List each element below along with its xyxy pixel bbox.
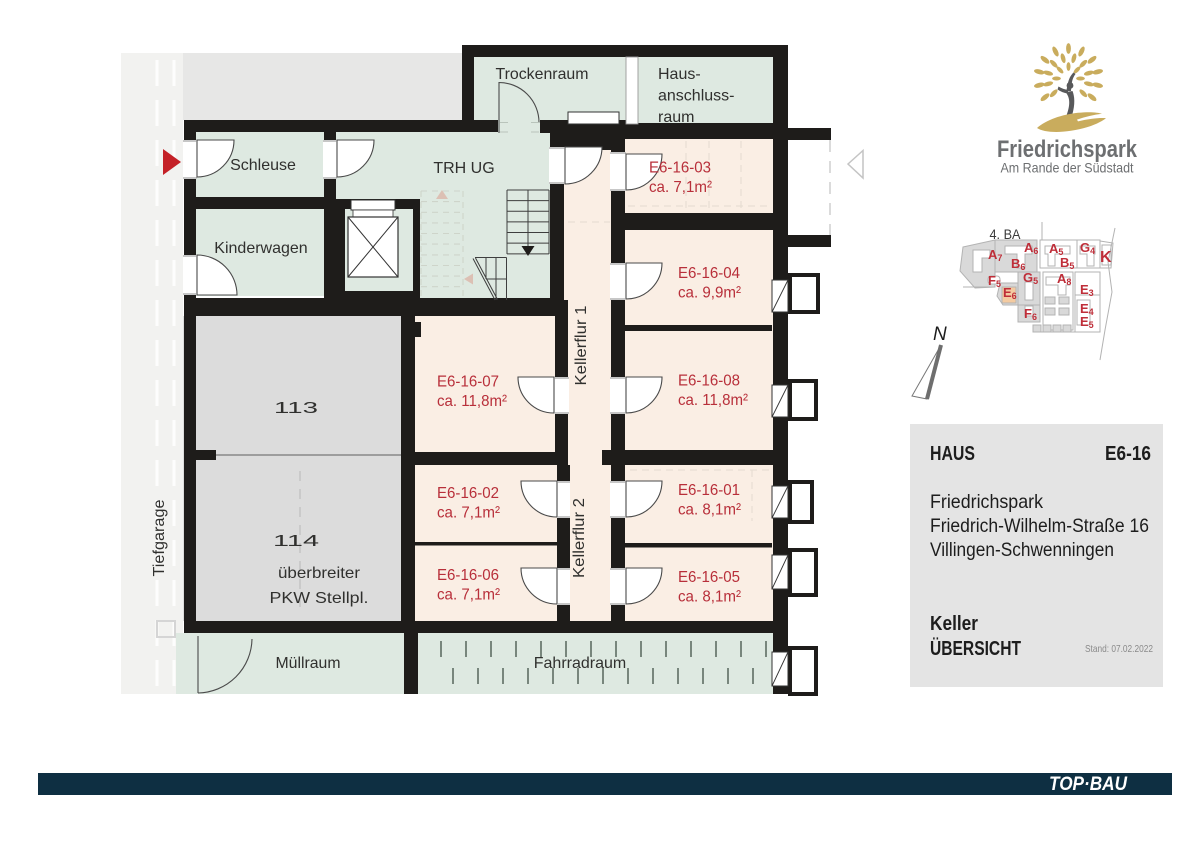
- svg-text:Keller: Keller: [930, 612, 978, 635]
- svg-text:ca. 7,1m²: ca. 7,1m²: [437, 587, 501, 604]
- svg-text:raum: raum: [658, 109, 694, 126]
- svg-text:ca. 7,1m²: ca. 7,1m²: [437, 505, 501, 522]
- svg-text:ca. 9,9m²: ca. 9,9m²: [678, 285, 742, 302]
- svg-text:überbreiter: überbreiter: [278, 565, 361, 582]
- svg-text:Müllraum: Müllraum: [276, 655, 341, 672]
- svg-text:E6-16-05: E6-16-05: [678, 569, 740, 586]
- svg-text:Am Rande der Südstadt: Am Rande der Südstadt: [1001, 160, 1134, 176]
- svg-text:Villingen-Schwenningen: Villingen-Schwenningen: [930, 539, 1114, 561]
- svg-text:114: 114: [273, 533, 319, 550]
- svg-text:E6-16-01: E6-16-01: [678, 482, 740, 499]
- svg-text:TRH UG: TRH UG: [433, 160, 494, 177]
- svg-text:PKW Stellpl.: PKW Stellpl.: [270, 590, 369, 607]
- svg-text:ca. 11,8m²: ca. 11,8m²: [437, 393, 508, 410]
- svg-text:ca. 8,1m²: ca. 8,1m²: [678, 502, 742, 519]
- svg-text:K: K: [1100, 249, 1112, 266]
- svg-text:anschluss-: anschluss-: [658, 88, 734, 105]
- svg-text:Friedrichspark: Friedrichspark: [930, 491, 1043, 513]
- svg-text:E6-16-03: E6-16-03: [649, 160, 711, 177]
- svg-text:Haus-: Haus-: [658, 66, 701, 83]
- svg-text:HAUS: HAUS: [930, 442, 975, 465]
- svg-text:E6-16-02: E6-16-02: [437, 485, 499, 502]
- svg-text:TOP·BAU: TOP·BAU: [1049, 774, 1128, 795]
- svg-text:Stand: 07.02.2022: Stand: 07.02.2022: [1085, 643, 1153, 655]
- svg-text:ca. 8,1m²: ca. 8,1m²: [678, 589, 742, 606]
- svg-text:E6-16-08: E6-16-08: [678, 373, 740, 390]
- svg-text:E6-16-06: E6-16-06: [437, 567, 499, 584]
- svg-text:113: 113: [274, 400, 318, 417]
- svg-text:Tiefgarage: Tiefgarage: [151, 499, 168, 576]
- svg-text:E6-16-04: E6-16-04: [678, 265, 740, 282]
- svg-text:E6-16-07: E6-16-07: [437, 374, 499, 391]
- svg-text:E6-16: E6-16: [1105, 442, 1151, 465]
- svg-text:Trockenraum: Trockenraum: [496, 66, 589, 83]
- svg-text:ÜBERSICHT: ÜBERSICHT: [930, 637, 1021, 660]
- svg-text:Schleuse: Schleuse: [230, 157, 296, 174]
- svg-text:Kellerflur 1: Kellerflur 1: [573, 305, 590, 385]
- svg-text:Fahrradraum: Fahrradraum: [534, 655, 626, 672]
- svg-text:Friedrich-Wilhelm-Straße 16: Friedrich-Wilhelm-Straße 16: [930, 515, 1149, 537]
- svg-text:ca. 11,8m²: ca. 11,8m²: [678, 392, 749, 409]
- svg-text:ca. 7,1m²: ca. 7,1m²: [649, 179, 713, 196]
- svg-text:N: N: [933, 324, 947, 345]
- svg-text:Kellerflur 2: Kellerflur 2: [571, 498, 588, 578]
- svg-text:Kinderwagen: Kinderwagen: [214, 240, 307, 257]
